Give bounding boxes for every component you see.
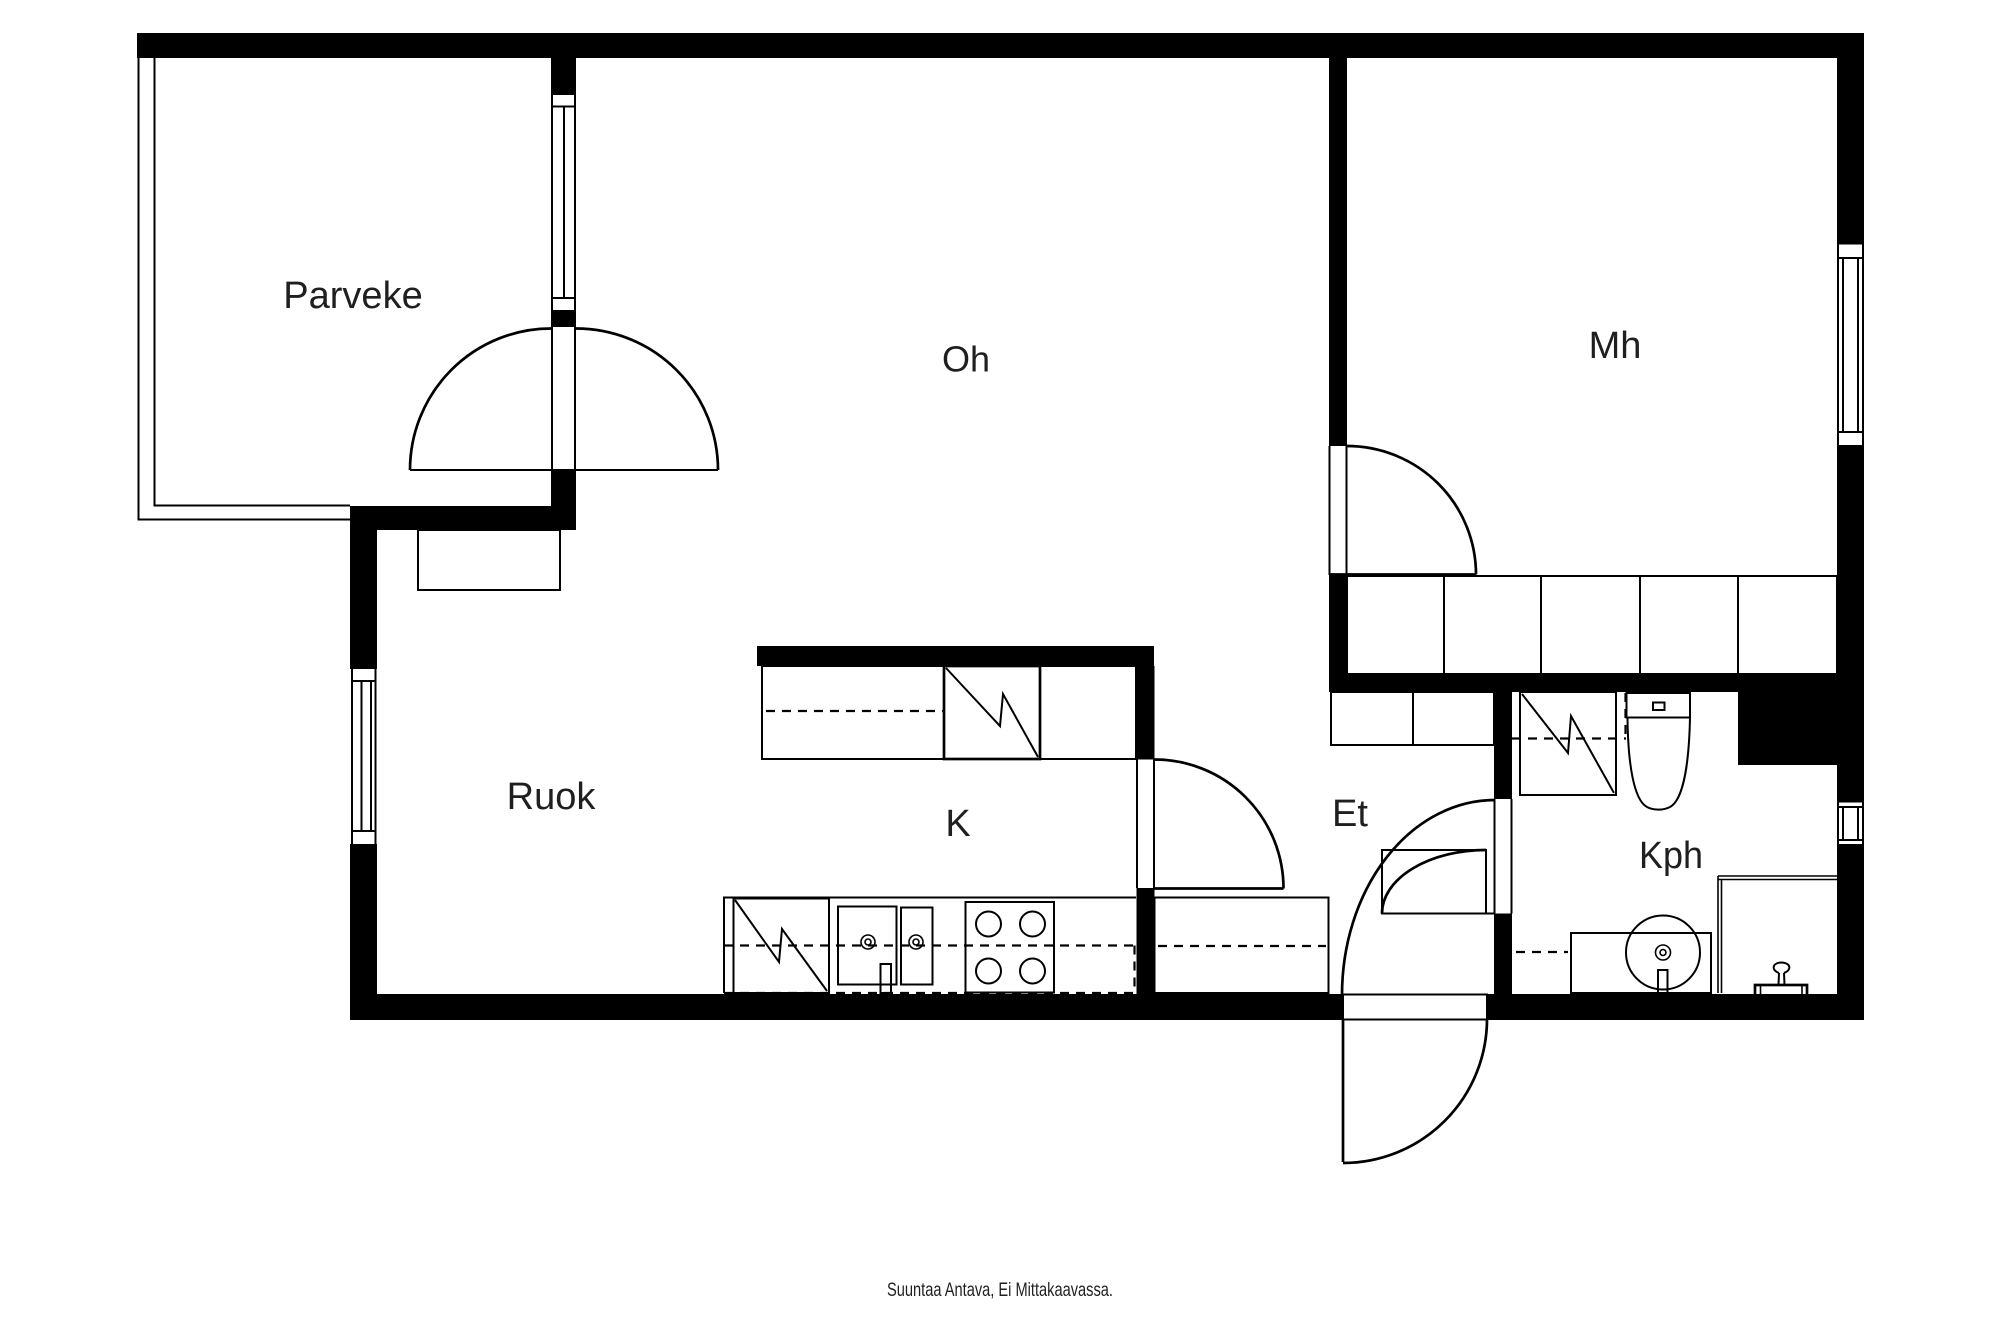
svg-text:Suuntaa Antava, Ei Mittakaavas: Suuntaa Antava, Ei Mittakaavassa. <box>887 1279 1113 1301</box>
svg-text:Mh: Mh <box>1589 325 1642 367</box>
svg-text:Kph: Kph <box>1639 835 1703 877</box>
svg-text:K: K <box>945 803 970 845</box>
svg-text:Et: Et <box>1332 793 1368 835</box>
svg-text:Oh: Oh <box>942 339 990 380</box>
svg-text:Ruok: Ruok <box>507 776 597 818</box>
svg-text:Parveke: Parveke <box>283 275 422 317</box>
